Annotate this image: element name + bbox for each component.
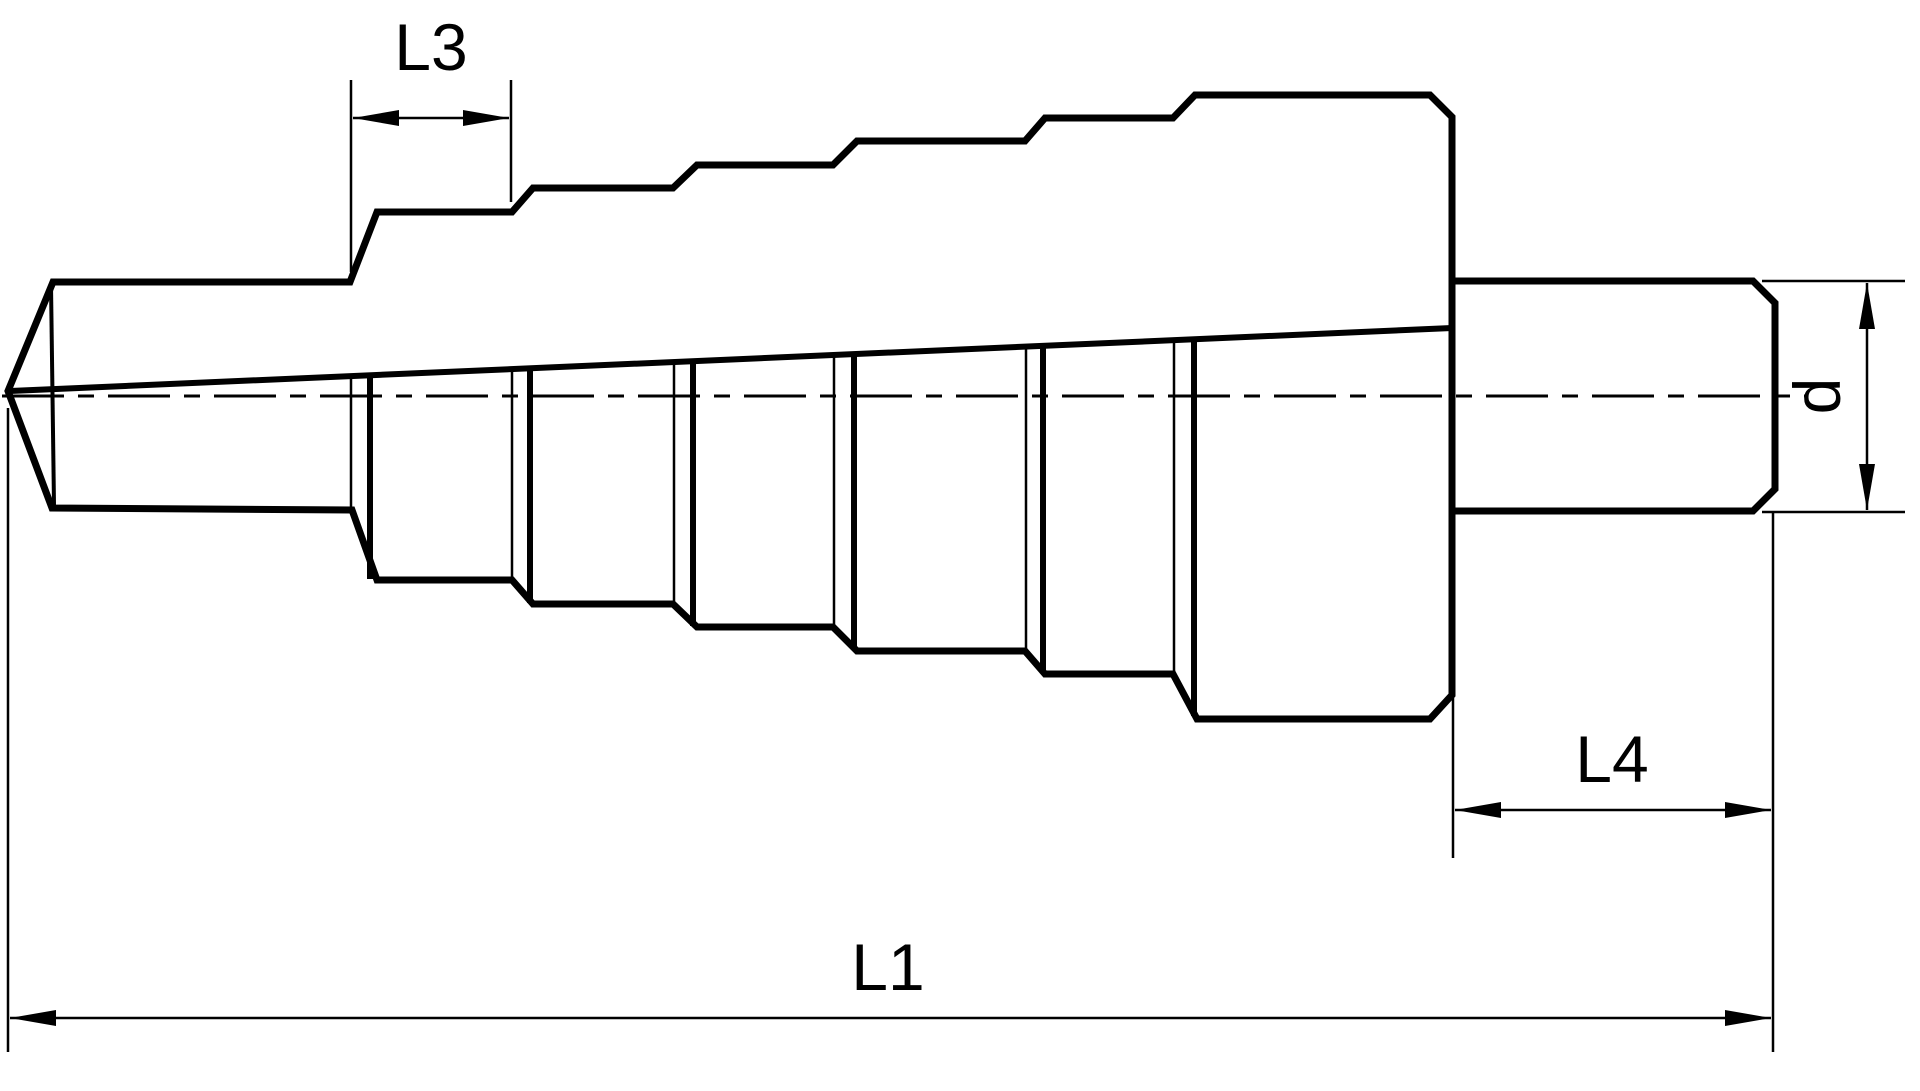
flute-taper-edge xyxy=(10,328,1452,391)
tip-face-edge xyxy=(51,285,54,505)
l1-label: L1 xyxy=(851,930,924,1004)
l1-arrow-right xyxy=(1725,1010,1771,1026)
dimension-L1: L1 xyxy=(8,408,1771,1052)
l4-arrow-left xyxy=(1455,802,1501,818)
drawing-canvas: L3 d L4 L1 xyxy=(0,0,1920,1091)
l3-label: L3 xyxy=(394,10,467,84)
d-arrow-bottom xyxy=(1859,464,1875,510)
l4-label: L4 xyxy=(1575,722,1648,796)
l3-arrow-left xyxy=(353,110,399,126)
step-drill-diagram: L3 d L4 L1 xyxy=(0,0,1920,1091)
step-edges-thin xyxy=(351,340,1174,673)
l4-arrow-right xyxy=(1725,802,1771,818)
d-label: d xyxy=(1780,378,1854,415)
dimension-L4: L4 xyxy=(1453,513,1773,1052)
d-arrow-top xyxy=(1859,283,1875,329)
dimension-d: d xyxy=(1762,281,1905,512)
drill-body-outline xyxy=(8,95,1452,719)
l3-arrow-right xyxy=(463,110,509,126)
dimension-L3: L3 xyxy=(351,10,511,272)
l1-arrow-left xyxy=(10,1010,56,1026)
